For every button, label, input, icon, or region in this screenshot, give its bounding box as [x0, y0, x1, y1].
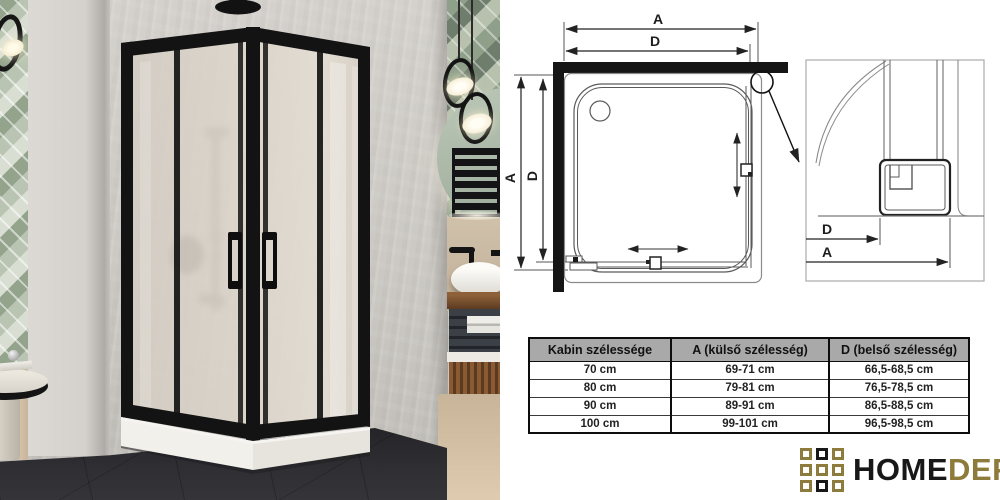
cell-outer: 99-101 cm: [671, 415, 829, 433]
technical-diagram: A D A D: [500, 0, 1000, 310]
cell-cabin: 80 cm: [529, 379, 671, 397]
shower-tray-outline: [574, 84, 752, 272]
cell-cabin: 70 cm: [529, 361, 671, 379]
rain-shower-head: [215, 0, 261, 15]
cell-inner: 96,5-98,5 cm: [829, 415, 969, 433]
dim-label-outer-left: A: [502, 173, 518, 183]
cell-inner: 76,5-78,5 cm: [829, 379, 969, 397]
cell-outer: 79-81 cm: [671, 379, 829, 397]
product-photo: [0, 0, 500, 500]
cell-outer: 69-71 cm: [671, 361, 829, 379]
drain: [590, 101, 610, 121]
logo-word-depo: DEPO: [948, 452, 1000, 487]
table-row: 90 cm 89-91 cm 86,5-88,5 cm: [529, 397, 969, 415]
wall-top: [553, 62, 788, 73]
cell-inner: 66,5-68,5 cm: [829, 361, 969, 379]
detail-leader-arrow: [769, 91, 799, 162]
size-table-header-row: Kabin szélessége A (külső szélesség) D (…: [529, 338, 969, 361]
door-handle-bottom: [650, 257, 661, 269]
col-header-cabin: Kabin szélessége: [529, 338, 671, 361]
shower-cabin: [0, 0, 500, 500]
logo-wordmark: HOMEDEPO: [853, 452, 1000, 488]
detail-dim-label-outer: A: [822, 244, 832, 260]
logo-word-home: HOME: [853, 452, 948, 487]
dim-label-inner-left: D: [524, 171, 540, 181]
spec-panel: A D A D: [500, 0, 1000, 500]
cell-cabin: 100 cm: [529, 415, 671, 433]
detail-dim-label-inner: D: [822, 221, 832, 237]
dim-label-outer-top: A: [653, 11, 663, 27]
product-listing-image: A D A D: [0, 0, 1000, 500]
table-row: 100 cm 99-101 cm 96,5-98,5 cm: [529, 415, 969, 433]
wall-left: [553, 62, 564, 292]
cell-cabin: 90 cm: [529, 397, 671, 415]
table-row: 70 cm 69-71 cm 66,5-68,5 cm: [529, 361, 969, 379]
col-header-inner: D (belső szélesség): [829, 338, 969, 361]
logo-mark: [800, 448, 844, 492]
dim-label-inner-top: D: [650, 33, 660, 49]
cell-outer: 89-91 cm: [671, 397, 829, 415]
cell-inner: 86,5-88,5 cm: [829, 397, 969, 415]
homedepo-logo: HOMEDEPO: [800, 444, 1000, 496]
col-header-outer: A (külső szélesség): [671, 338, 829, 361]
table-row: 80 cm 79-81 cm 76,5-78,5 cm: [529, 379, 969, 397]
size-table: Kabin szélessége A (külső szélesség) D (…: [528, 337, 970, 434]
